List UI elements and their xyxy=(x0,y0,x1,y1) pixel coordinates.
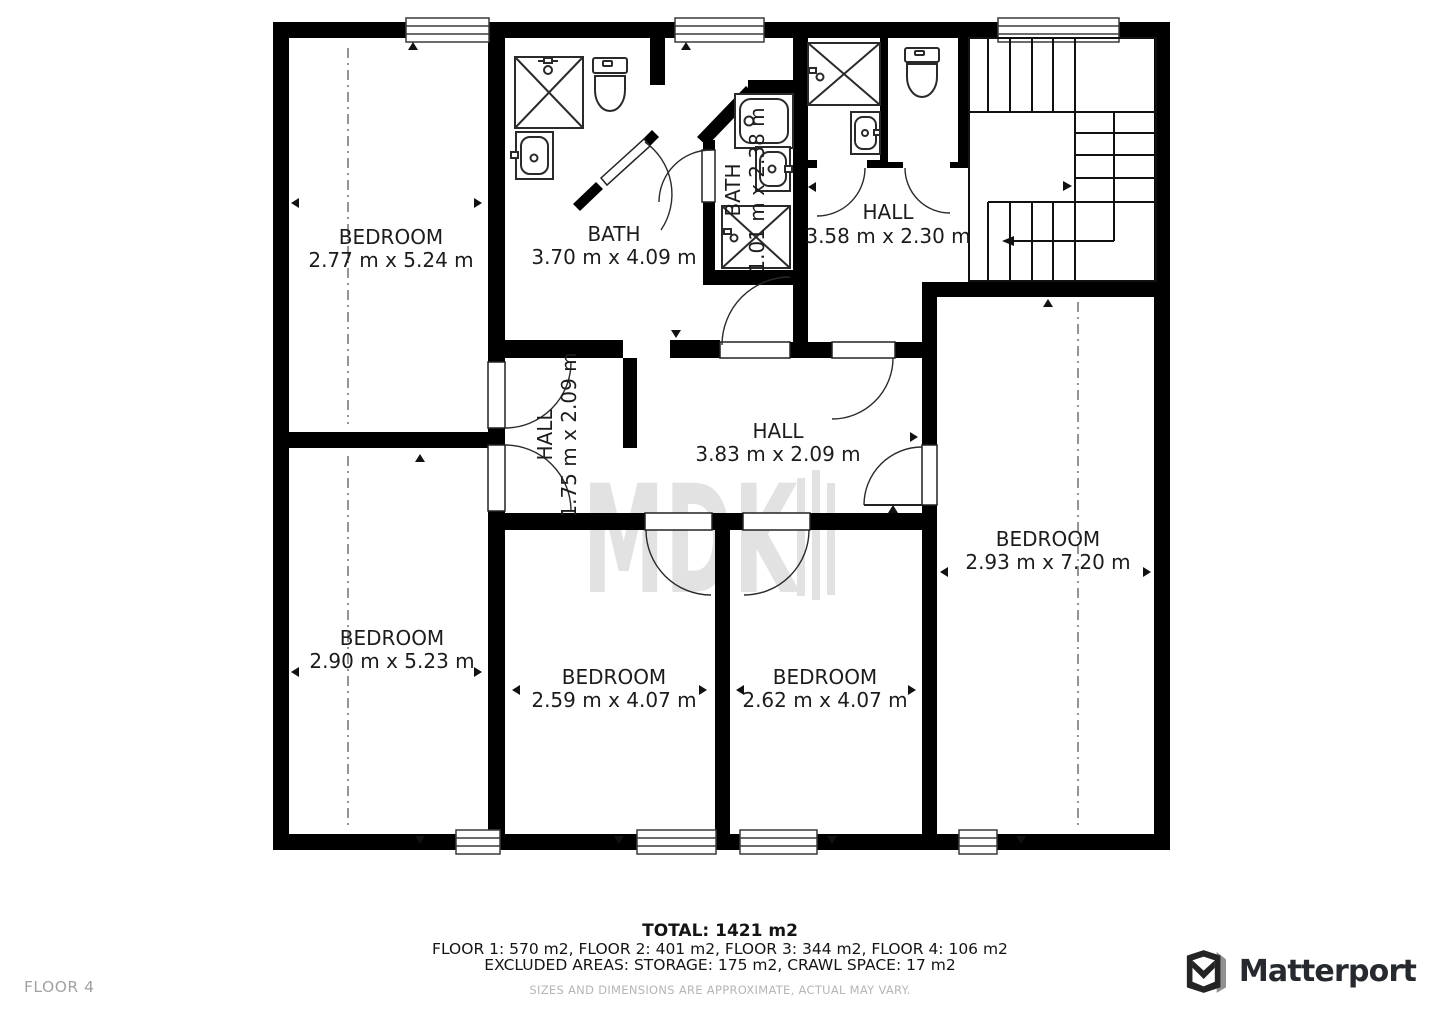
room-label-dims: 1.75 m x 2.09 m xyxy=(557,352,581,517)
room-label-dims: 2.62 m x 4.07 m xyxy=(742,688,907,712)
watermark-text: MDK xyxy=(583,454,801,628)
room-label-dims: 2.90 m x 5.23 m xyxy=(309,649,474,673)
total-area-text: TOTAL: 1421 m2 xyxy=(0,921,1440,941)
window xyxy=(675,18,764,42)
matterport-logo: Matterport xyxy=(1185,948,1416,995)
walls xyxy=(273,22,1170,850)
room-label-dims: 3.83 m x 2.09 m xyxy=(695,442,860,466)
room-label-dims: 3.58 m x 2.30 m xyxy=(805,224,970,248)
room-label-name: BATH xyxy=(587,222,640,246)
watermark: MDK xyxy=(583,454,836,628)
toilet-icon xyxy=(905,48,939,97)
room-label-name: BEDROOM xyxy=(996,527,1100,551)
room-label-name: BEDROOM xyxy=(340,626,444,650)
shower-icon xyxy=(515,57,583,128)
sink-icon xyxy=(511,132,553,179)
room-label-name: HALL xyxy=(533,409,557,461)
toilet-icon xyxy=(593,58,627,111)
window xyxy=(637,830,716,854)
room-label-name: HALL xyxy=(862,200,914,224)
matterport-wordmark: Matterport xyxy=(1239,954,1416,989)
sink-icon xyxy=(851,112,880,154)
window xyxy=(406,18,489,42)
room-label-name: BEDROOM xyxy=(562,665,666,689)
shower-icon xyxy=(808,43,880,105)
room-label-dims: 2.93 m x 7.20 m xyxy=(965,550,1130,574)
staircase xyxy=(969,38,1156,281)
room-label-name: BEDROOM xyxy=(773,665,877,689)
window xyxy=(740,830,817,854)
floor-number-label: FLOOR 4 xyxy=(24,978,94,996)
window xyxy=(456,830,500,854)
room-label-dims: 1.01 m x 2.38 m xyxy=(745,107,769,272)
room-label-name: BEDROOM xyxy=(339,225,443,249)
window xyxy=(959,830,997,854)
room-label-name: HALL xyxy=(752,419,804,443)
room-label-dims: 3.70 m x 4.09 m xyxy=(531,245,696,269)
room-label-dims: 2.77 m x 5.24 m xyxy=(308,248,473,272)
room-label-dims: 2.59 m x 4.07 m xyxy=(531,688,696,712)
room-label-name: BATH xyxy=(721,163,745,216)
floorplan-svg: MDK xyxy=(0,0,1440,1019)
matterport-icon xyxy=(1185,948,1226,995)
